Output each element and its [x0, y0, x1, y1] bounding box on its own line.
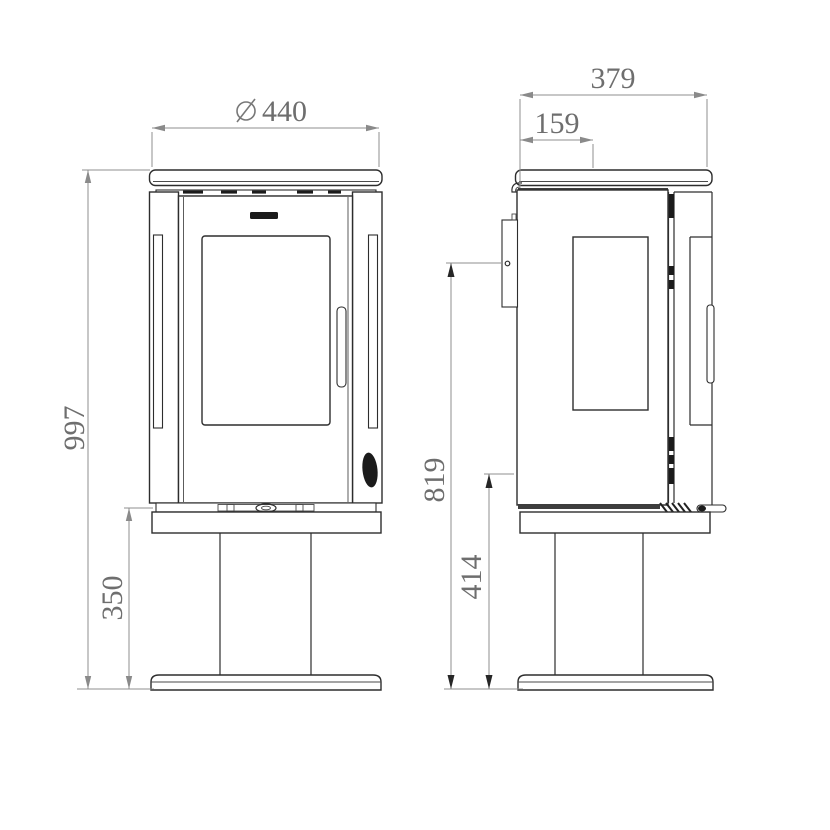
side-base-block [520, 512, 710, 533]
arrowhead [85, 676, 91, 689]
brand-logo [250, 212, 278, 219]
side-view [502, 170, 726, 690]
side-door-handle [707, 305, 714, 383]
front-view [150, 170, 383, 690]
drawing-svg: 440 997 350 379 [0, 0, 830, 830]
front-left-panel-groove [154, 235, 163, 428]
arrowhead [448, 263, 455, 277]
dim-rear-outlet-height-value: 819 [418, 458, 451, 503]
side-door-front-edge [674, 192, 712, 505]
side-door-hinge [669, 192, 675, 503]
dim-top-outlet-offset: 159 [520, 107, 593, 168]
arrowhead [366, 125, 379, 131]
front-door-window [202, 236, 330, 425]
front-base-block [152, 512, 381, 533]
arrowhead [520, 92, 533, 98]
arrowhead [580, 137, 593, 143]
dim-top-outlet-offset-value: 159 [535, 107, 580, 140]
dim-overall-height-value: 997 [58, 406, 91, 451]
arrowhead [126, 676, 132, 689]
arrowhead [126, 508, 132, 521]
dim-firebox-bottom-height-value: 414 [455, 555, 488, 600]
side-pedestal-column [555, 533, 643, 675]
arrowhead [486, 675, 493, 689]
front-right-panel-groove [369, 235, 378, 428]
arrowhead [694, 92, 707, 98]
dim-top-diameter-value: 440 [262, 95, 307, 128]
front-top-plate [150, 170, 383, 186]
side-bottom-seam [518, 504, 660, 509]
dim-depth-value: 379 [591, 62, 636, 95]
front-door-handle [337, 307, 346, 387]
arrowhead [486, 474, 493, 488]
front-pedestal-column [220, 533, 311, 675]
front-foot-base [151, 675, 381, 690]
dim-top-diameter: 440 [152, 95, 379, 167]
side-top-plate [516, 170, 713, 186]
dim-rear-outlet-height: 819 [418, 263, 503, 689]
arrowhead [152, 125, 165, 131]
side-foot-base [518, 675, 713, 690]
dim-pedestal-height-value: 350 [96, 576, 129, 621]
arrowhead [85, 170, 91, 183]
side-window [573, 237, 648, 410]
technical-drawing: 440 997 350 379 [0, 0, 830, 830]
dim-firebox-bottom-height: 414 [455, 474, 514, 689]
dim-pedestal-height: 350 [96, 508, 153, 689]
diameter-symbol-icon [237, 99, 255, 122]
arrowhead [520, 137, 533, 143]
arrowhead [448, 675, 455, 689]
